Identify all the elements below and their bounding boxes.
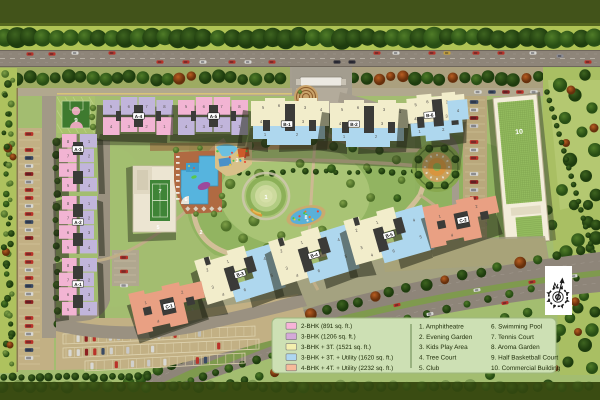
svg-text:9. Half Basketball Court: 9. Half Basketball Court <box>491 355 558 362</box>
svg-text:6: 6 <box>184 197 187 203</box>
svg-text:4. Tree Court: 4. Tree Court <box>419 355 457 362</box>
svg-text:3-BHK + 3T. (1521 sq. ft.): 3-BHK + 3T. (1521 sq. ft.) <box>301 344 371 351</box>
svg-text:5. Club: 5. Club <box>419 365 440 372</box>
svg-text:10. Commercial Building: 10. Commercial Building <box>491 365 561 372</box>
svg-text:1. Amphitheatre: 1. Amphitheatre <box>419 323 464 330</box>
svg-text:7. Tennis Court: 7. Tennis Court <box>491 334 534 341</box>
svg-text:3-BHK + 3T. + Utility (1620 sq: 3-BHK + 3T. + Utility (1620 sq. ft.) <box>301 354 393 361</box>
svg-text:B-6: B-6 <box>426 113 434 119</box>
svg-text:A-5: A-5 <box>210 114 218 119</box>
svg-text:A-1: A-1 <box>74 282 82 287</box>
svg-text:4-BHK + 4T. + Utility (2232 sq: 4-BHK + 4T. + Utility (2232 sq. ft.) <box>301 365 393 372</box>
svg-text:3: 3 <box>235 158 238 164</box>
svg-text:7: 7 <box>158 189 161 195</box>
svg-text:3-BHK (1206 sq. ft.): 3-BHK (1206 sq. ft.) <box>301 334 356 341</box>
svg-text:A-3: A-3 <box>74 147 82 152</box>
svg-text:8. Aroma Garden: 8. Aroma Garden <box>491 344 540 351</box>
svg-text:2: 2 <box>199 230 202 236</box>
svg-text:2-BHK (891 sq. ft.): 2-BHK (891 sq. ft.) <box>301 323 352 330</box>
svg-text:B-1: B-1 <box>283 122 291 127</box>
svg-text:5: 5 <box>156 225 159 231</box>
svg-text:2. Evening Garden: 2. Evening Garden <box>419 334 473 341</box>
svg-text:A-4: A-4 <box>135 114 143 119</box>
svg-text:B-2: B-2 <box>350 122 358 127</box>
svg-text:6. Swimming Pool: 6. Swimming Pool <box>491 323 542 330</box>
svg-text:3. Kids Play Area: 3. Kids Play Area <box>419 344 468 351</box>
svg-text:8: 8 <box>304 215 307 221</box>
svg-text:10: 10 <box>515 129 523 137</box>
svg-text:A-2: A-2 <box>74 220 82 225</box>
